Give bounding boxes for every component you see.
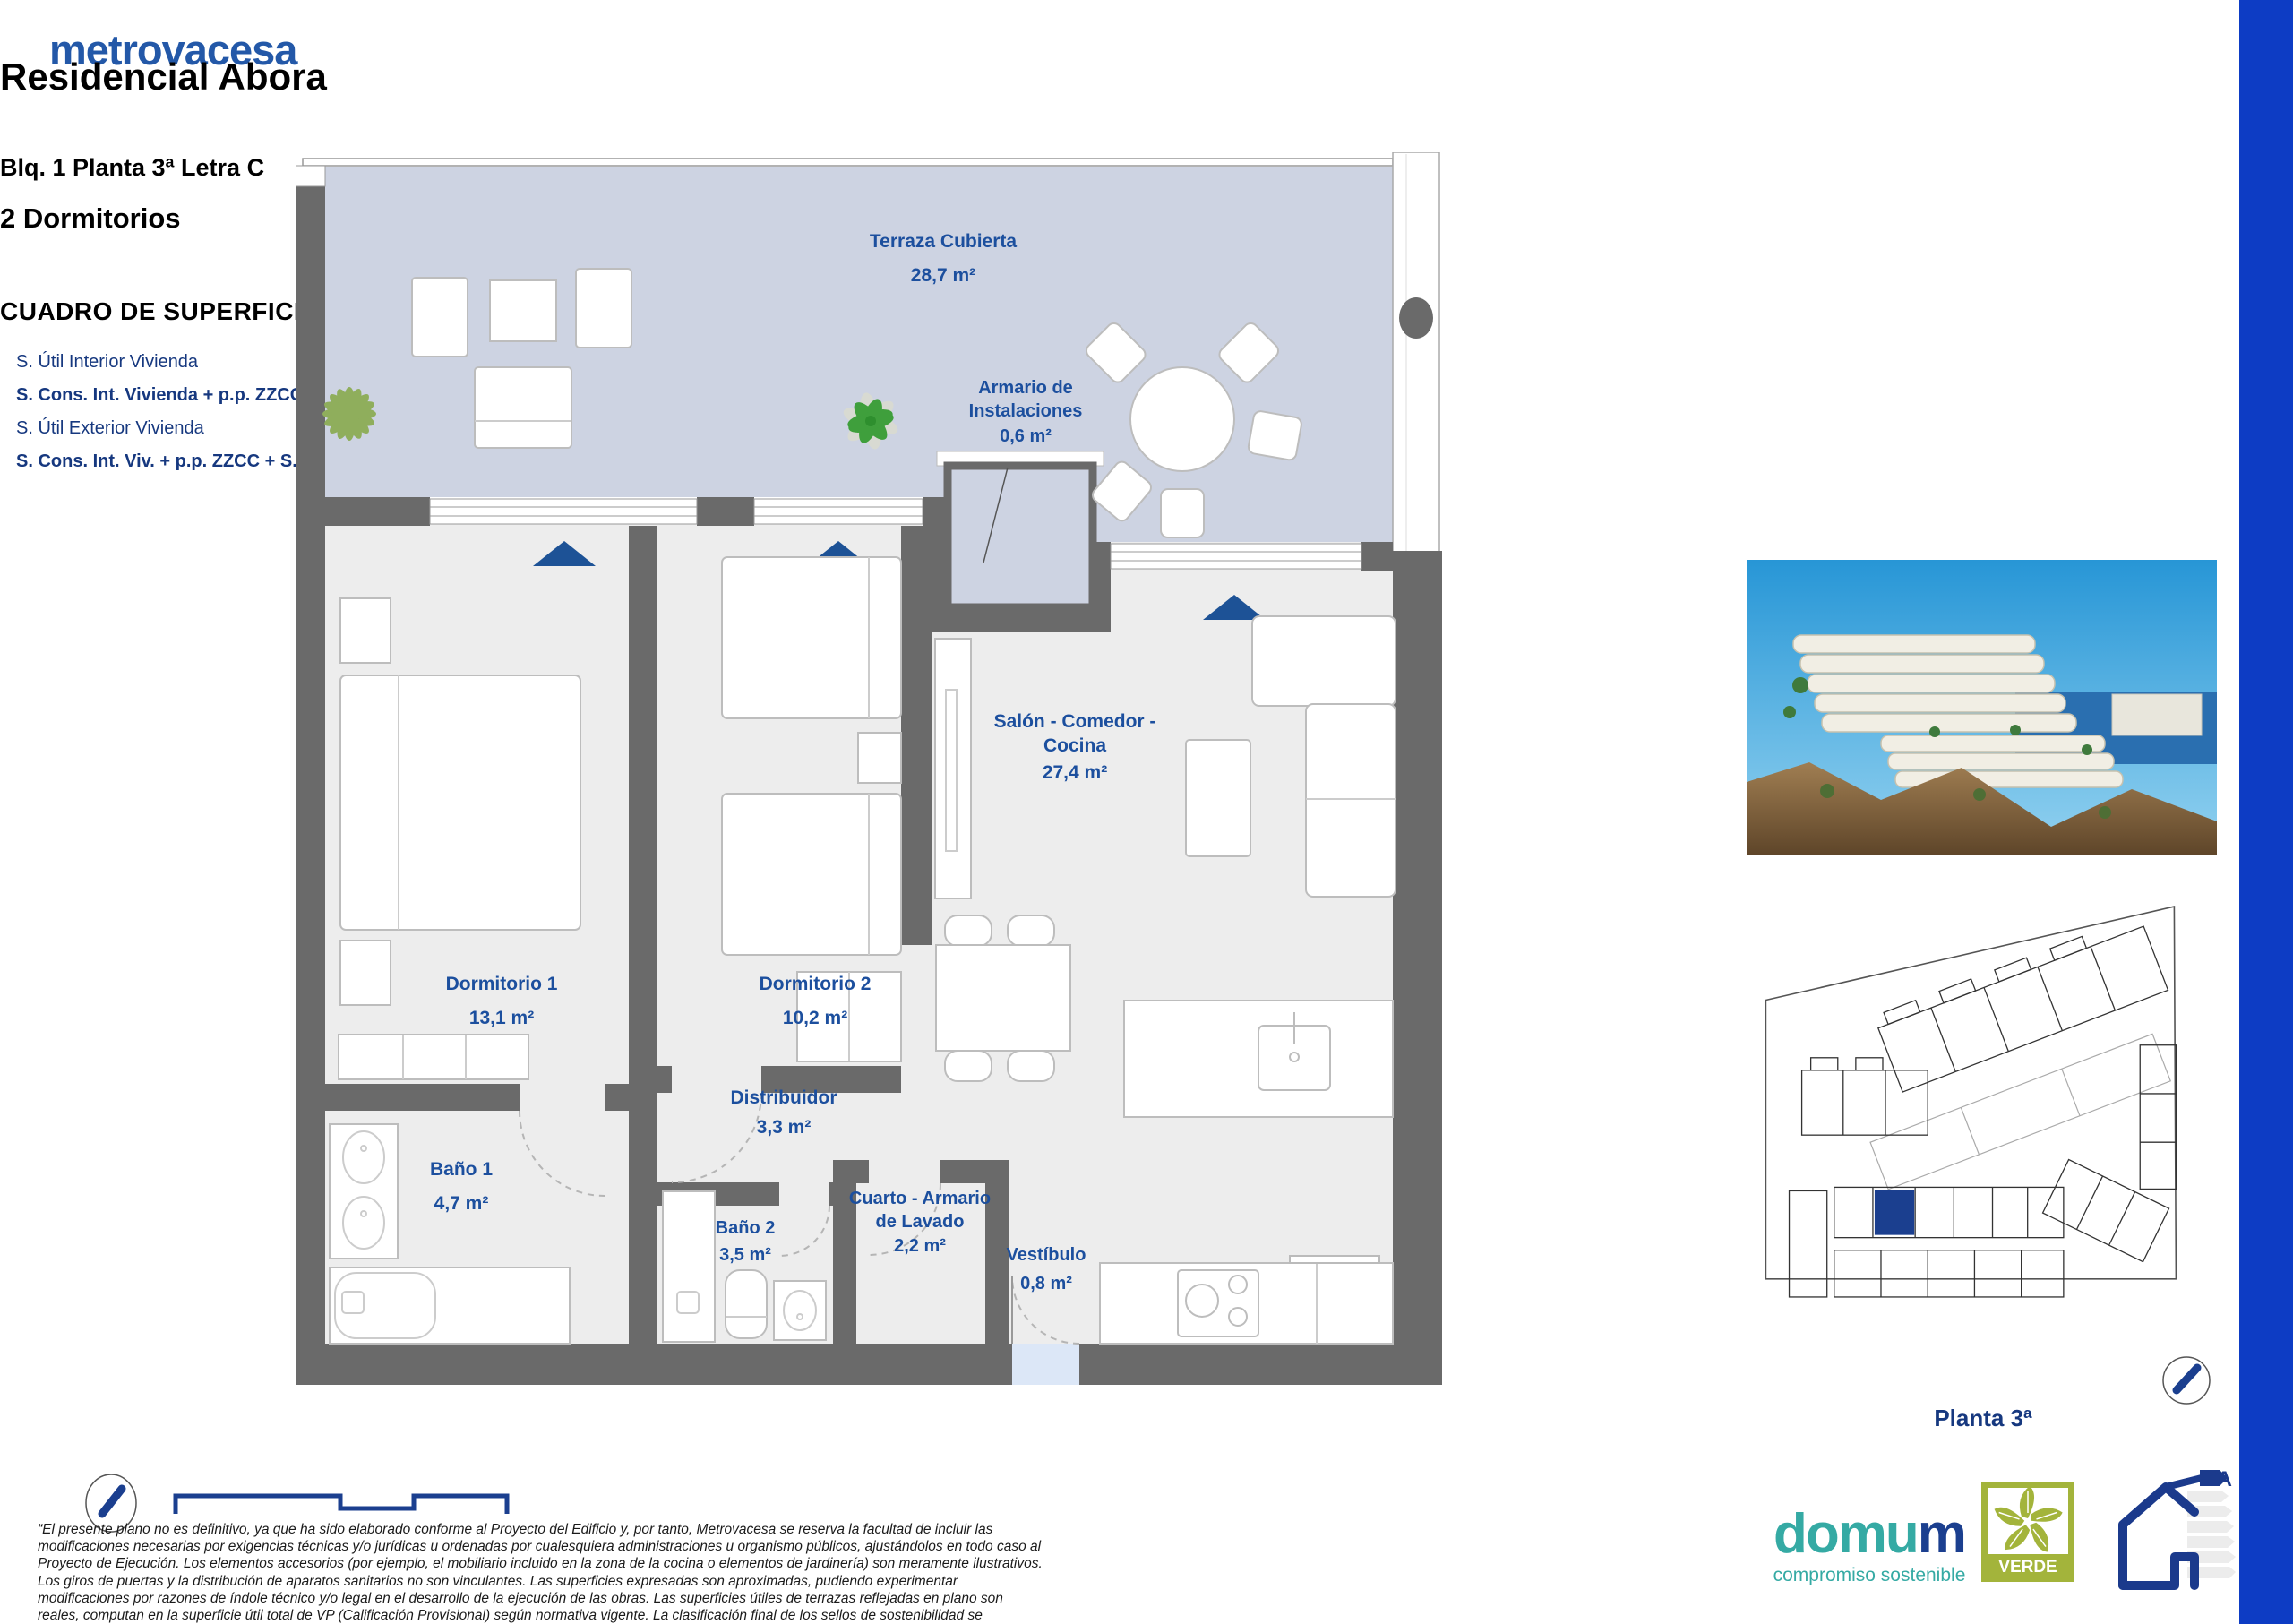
plan-sheet: metrovacesa Residencial Abora Blq. 1 Pla… <box>0 0 2293 1624</box>
room-label-armario-instalaciones: Armario de Instalaciones 0,6 m² <box>958 376 1093 448</box>
party-wall-strip <box>1393 152 1439 564</box>
house-outline-icon <box>2123 1487 2194 1585</box>
room-name: Distribuidor <box>731 1087 837 1108</box>
room-label-dormitorio1: Dormitorio 1 13,1 m² <box>446 972 558 1031</box>
room-area: 2,2 m² <box>846 1234 994 1258</box>
room-name: Terraza Cubierta <box>870 231 1017 252</box>
room-name: Salón - Comedor - Cocina <box>994 711 1156 756</box>
verde-badge: VERDE <box>1981 1482 2074 1586</box>
room-area: 27,4 m² <box>992 760 1158 785</box>
domum-logo: domum compromiso sostenible <box>1757 1507 1981 1585</box>
row-label: S. Cons. Int. Vivienda + p.p. ZZCC <box>16 385 303 406</box>
energy-rating-icon: A <box>2101 1469 2236 1601</box>
row-label: S. Útil Exterior Vivienda <box>16 418 204 439</box>
installations-closet <box>948 466 1093 607</box>
building-photo-art <box>1747 560 2217 855</box>
room-area: 0,8 m² <box>1007 1272 1086 1295</box>
room-area: 28,7 m² <box>870 263 1017 288</box>
room-name: Vestíbulo <box>1007 1245 1086 1265</box>
site-plan-caption: Planta 3ª <box>1738 1405 2229 1432</box>
room-name: Dormitorio 1 <box>446 974 558 994</box>
domum-tagline: compromiso sostenible <box>1757 1566 1981 1585</box>
room-area: 4,7 m² <box>430 1191 493 1216</box>
room-label-terraza: Terraza Cubierta 28,7 m² <box>870 229 1017 288</box>
entrance-door-gap <box>1012 1344 1079 1385</box>
room-name: Baño 1 <box>430 1159 493 1180</box>
highlighted-unit <box>1875 1190 1914 1234</box>
legal-disclaimer: “El presente plano no es definitivo, ya … <box>38 1521 1048 1624</box>
room-label-salon: Salón - Comedor - Cocina 27,4 m² <box>992 709 1158 785</box>
room-name: Armario de Instalaciones <box>969 378 1083 421</box>
energy-class-label: A <box>2217 1469 2232 1491</box>
room-area: 0,6 m² <box>958 425 1093 448</box>
room-name: Dormitorio 2 <box>760 974 872 994</box>
site-compass-icon <box>2160 1354 2212 1411</box>
room-name: Cuarto - Armario de Lavado <box>849 1189 991 1232</box>
room-label-bano2: Baño 2 3,5 m² <box>716 1216 776 1267</box>
room-name: Baño 2 <box>716 1218 776 1238</box>
page-title: Residencial Abora <box>0 56 491 99</box>
room-label-dormitorio2: Dormitorio 2 10,2 m² <box>760 972 872 1031</box>
room-label-distribuidor: Distribuidor 3,3 m² <box>731 1086 837 1140</box>
room-label-vestibulo: Vestíbulo 0,8 m² <box>1007 1243 1086 1295</box>
floor-plan: Terraza Cubierta 28,7 m² Armario de Inst… <box>296 152 1451 1397</box>
room-label-cuarto-lavado: Cuarto - Armario de Lavado 2,2 m² <box>846 1187 994 1258</box>
column <box>1399 297 1433 339</box>
site-plan <box>1754 894 2224 1308</box>
blue-side-bar <box>2239 0 2293 1624</box>
verde-badge-label: VERDE <box>1998 1558 2057 1577</box>
row-label: S. Útil Interior Vivienda <box>16 352 198 373</box>
room-area: 13,1 m² <box>446 1006 558 1030</box>
site-plan-drawing <box>1754 894 2224 1308</box>
domum-logo-teal: domu <box>1773 1503 1918 1565</box>
scale-bar <box>170 1487 520 1524</box>
room-area: 3,3 m² <box>731 1115 837 1139</box>
room-label-bano1: Baño 1 4,7 m² <box>430 1157 493 1216</box>
building-photo <box>1747 560 2217 855</box>
domum-logo-navy: m <box>1918 1503 1965 1565</box>
room-area: 3,5 m² <box>716 1243 776 1267</box>
room-area: 10,2 m² <box>760 1006 872 1030</box>
